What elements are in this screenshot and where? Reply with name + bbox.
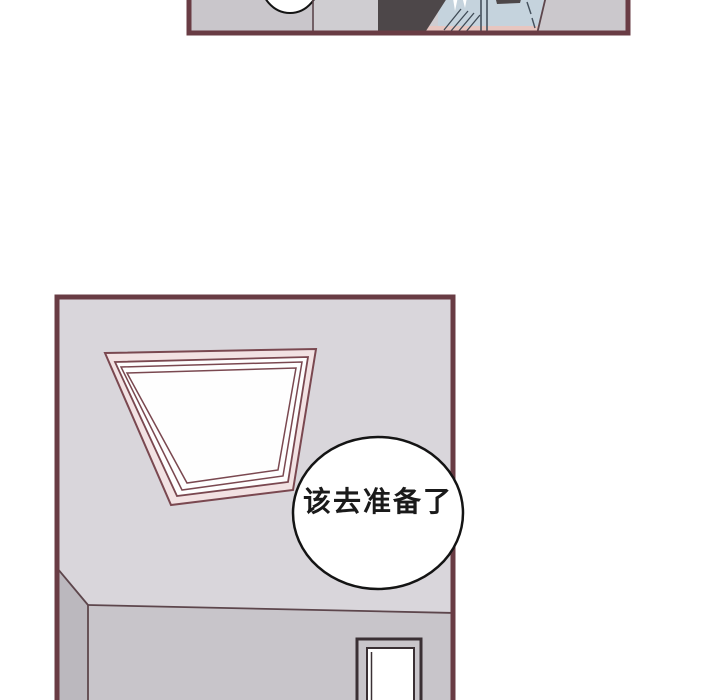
comic-page-canvas — [0, 0, 720, 700]
door — [357, 639, 421, 700]
top-panel-wall-right — [536, 0, 631, 35]
door-panel — [367, 648, 414, 700]
top-panel — [186, 0, 631, 36]
speech-bubble-text: 该去准备了 — [303, 480, 453, 520]
